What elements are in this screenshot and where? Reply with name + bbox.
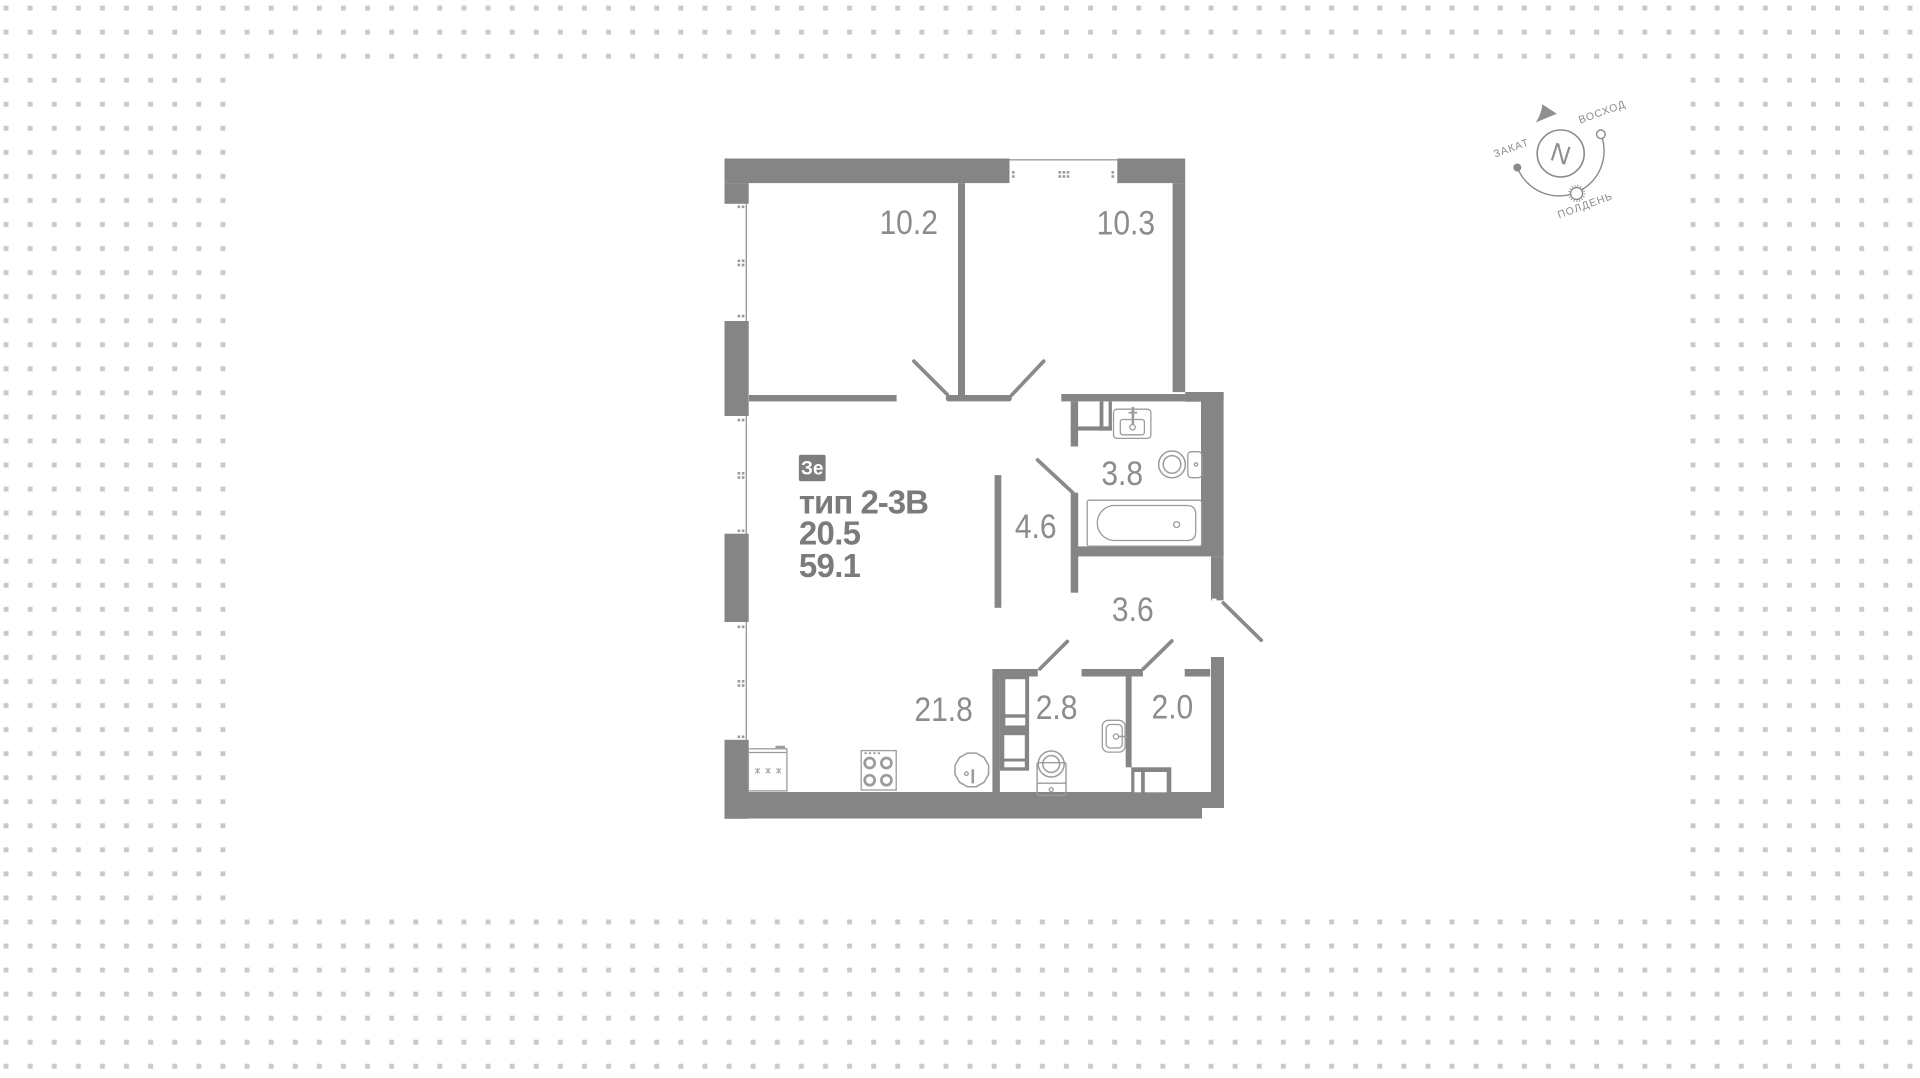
svg-text:Зе: Зе [801,459,823,480]
svg-text:21.8: 21.8 [914,690,972,728]
svg-text:2.8: 2.8 [1036,688,1078,726]
svg-text:3.6: 3.6 [1112,590,1154,628]
svg-text:10.3: 10.3 [1097,204,1155,242]
svg-text:4.6: 4.6 [1015,507,1057,545]
svg-text:3.8: 3.8 [1101,454,1143,492]
svg-text:10.2: 10.2 [879,203,937,241]
svg-text:20.5: 20.5 [799,514,861,551]
svg-text:2.0: 2.0 [1152,688,1194,726]
svg-text:59.1: 59.1 [799,547,861,584]
